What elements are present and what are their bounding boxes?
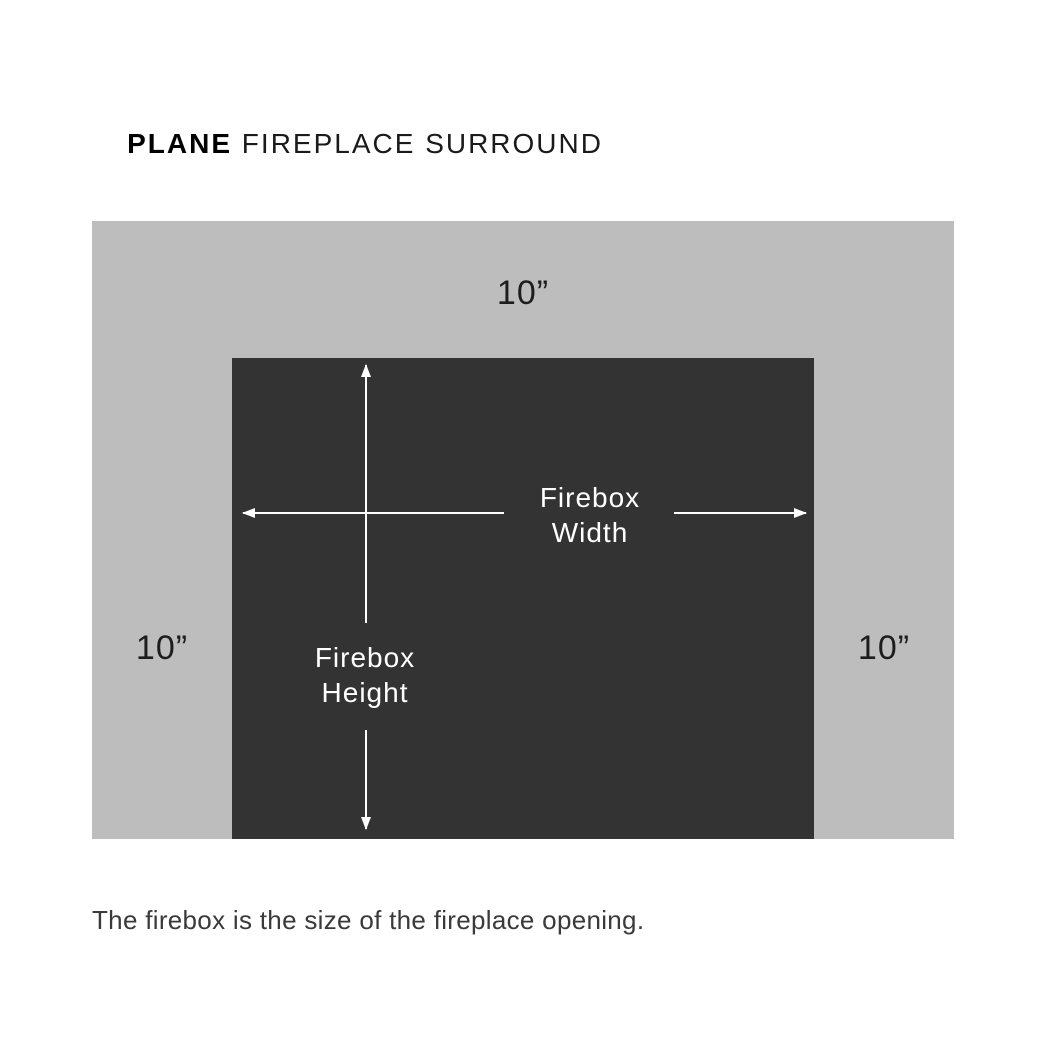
firebox-width-label-line2: Width	[500, 515, 680, 550]
title-rest: FIREPLACE SURROUND	[232, 128, 603, 159]
firebox-width-label-line1: Firebox	[500, 480, 680, 515]
firebox-width-label: Firebox Width	[500, 480, 680, 550]
firebox-opening	[232, 358, 814, 839]
firebox-height-label-line2: Height	[275, 675, 455, 710]
brand-name: PLANE	[127, 128, 232, 159]
left-margin-label: 10”	[92, 628, 232, 668]
firebox-height-label-line1: Firebox	[275, 640, 455, 675]
right-margin-label: 10”	[814, 628, 954, 668]
caption: The firebox is the size of the fireplace…	[92, 905, 644, 936]
firebox-height-label: Firebox Height	[275, 640, 455, 710]
page-title: PLANE FIREPLACE SURROUND	[88, 96, 603, 192]
page: PLANE FIREPLACE SURROUND 10” 10” 10” Fir…	[0, 0, 1042, 1042]
top-margin-label: 10”	[92, 273, 954, 313]
